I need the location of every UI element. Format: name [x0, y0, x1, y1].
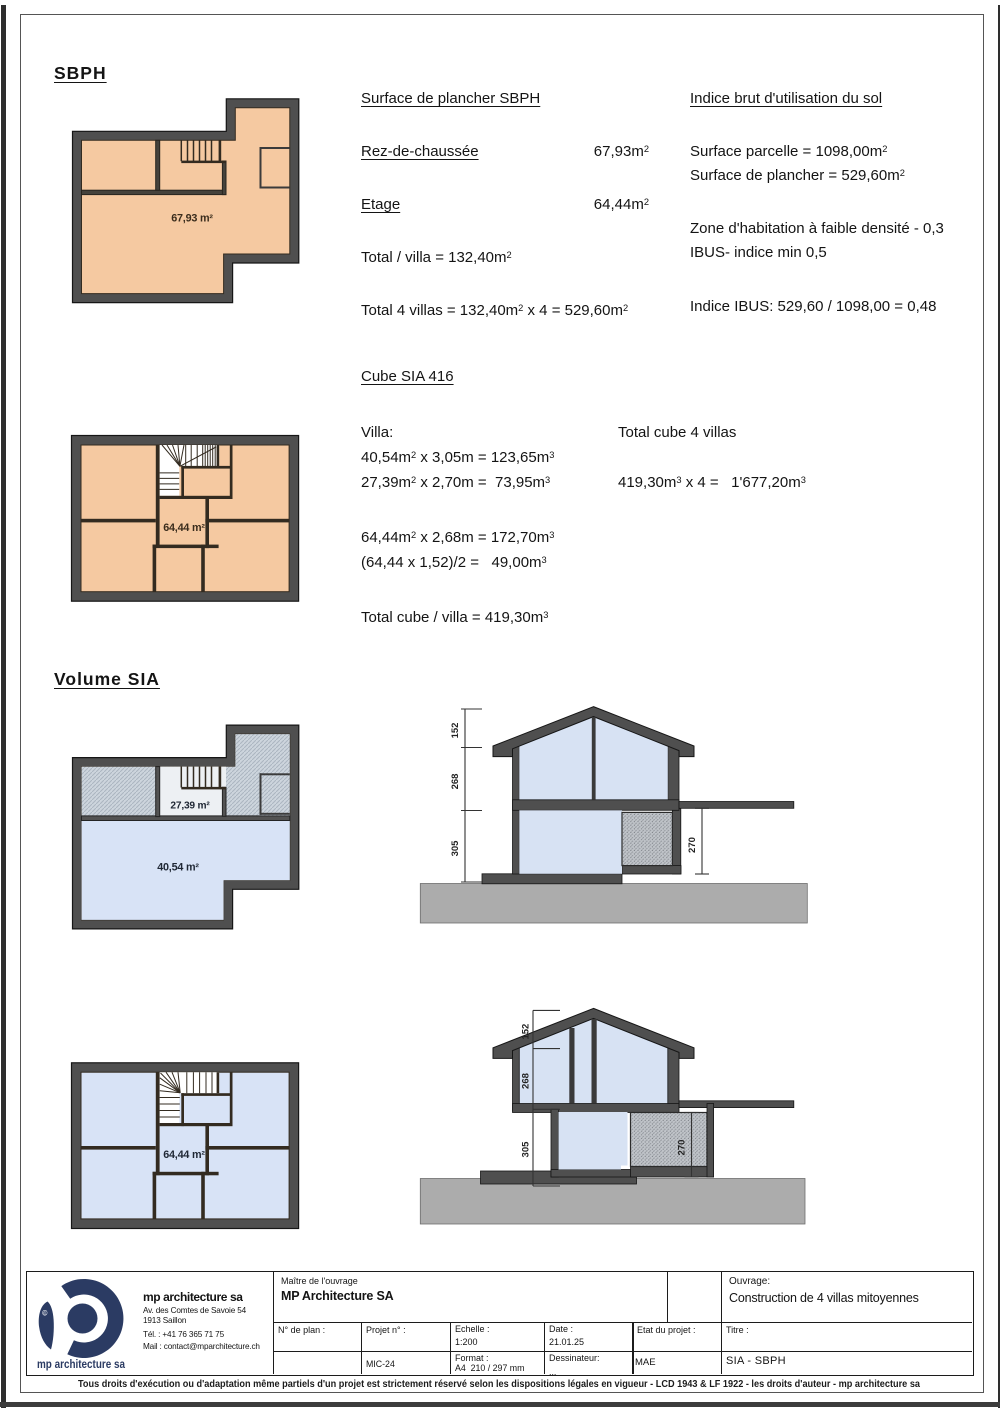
svg-text:268: 268 — [521, 1073, 532, 1089]
svg-text:152: 152 — [521, 1024, 532, 1040]
svg-text:268: 268 — [450, 774, 461, 790]
svg-text:27,39 m²: 27,39 m² — [170, 800, 210, 811]
svg-text:67,93 m²: 67,93 m² — [171, 213, 213, 225]
svg-text:270: 270 — [687, 837, 698, 853]
svg-text:152: 152 — [450, 723, 461, 739]
svg-text:270: 270 — [677, 1140, 688, 1156]
svg-text:64,44 m²: 64,44 m² — [163, 522, 205, 534]
svg-text:40,54 m²: 40,54 m² — [157, 861, 199, 873]
svg-text:64,44 m²: 64,44 m² — [163, 1149, 205, 1161]
svg-text:305: 305 — [450, 840, 461, 857]
svg-text:305: 305 — [521, 1141, 532, 1158]
